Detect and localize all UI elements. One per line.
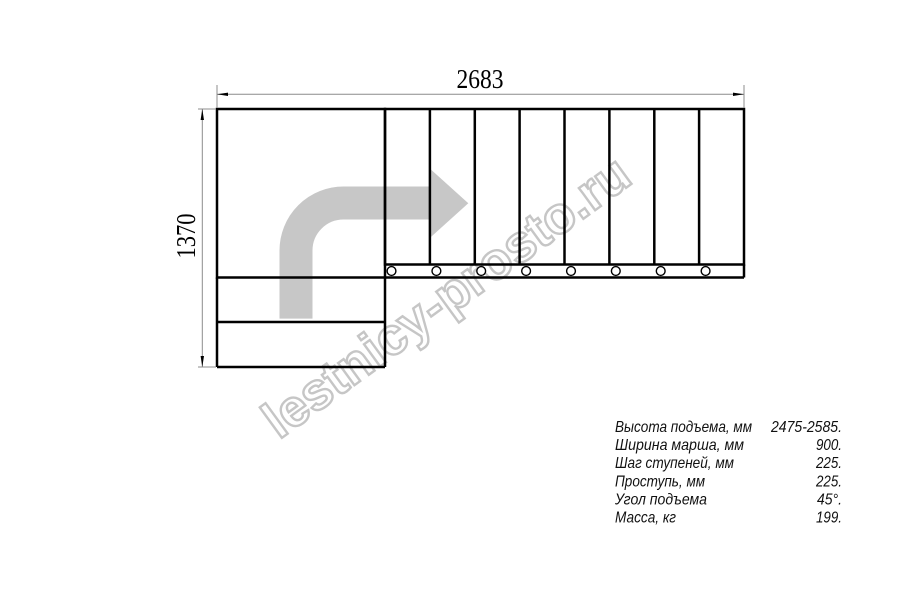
svg-text:45°.: 45°. xyxy=(817,492,842,509)
svg-text:Высота подъема, мм: Высота подъема, мм xyxy=(615,419,752,436)
svg-text:225.: 225. xyxy=(815,455,842,472)
svg-text:Масса, кг: Масса, кг xyxy=(615,510,676,527)
svg-text:Шаг ступеней, мм: Шаг ступеней, мм xyxy=(615,455,734,472)
svg-text:2475-2585.: 2475-2585. xyxy=(770,419,842,436)
svg-text:2683: 2683 xyxy=(457,64,504,94)
svg-text:225.: 225. xyxy=(815,474,842,491)
svg-text:199.: 199. xyxy=(816,510,842,527)
svg-text:900.: 900. xyxy=(816,437,842,454)
svg-text:Проступь, мм: Проступь, мм xyxy=(615,474,705,491)
svg-text:Угол подъема: Угол подъема xyxy=(614,492,707,509)
svg-text:Ширина марша, мм: Ширина марша, мм xyxy=(615,437,744,454)
svg-text:1370: 1370 xyxy=(171,214,201,259)
